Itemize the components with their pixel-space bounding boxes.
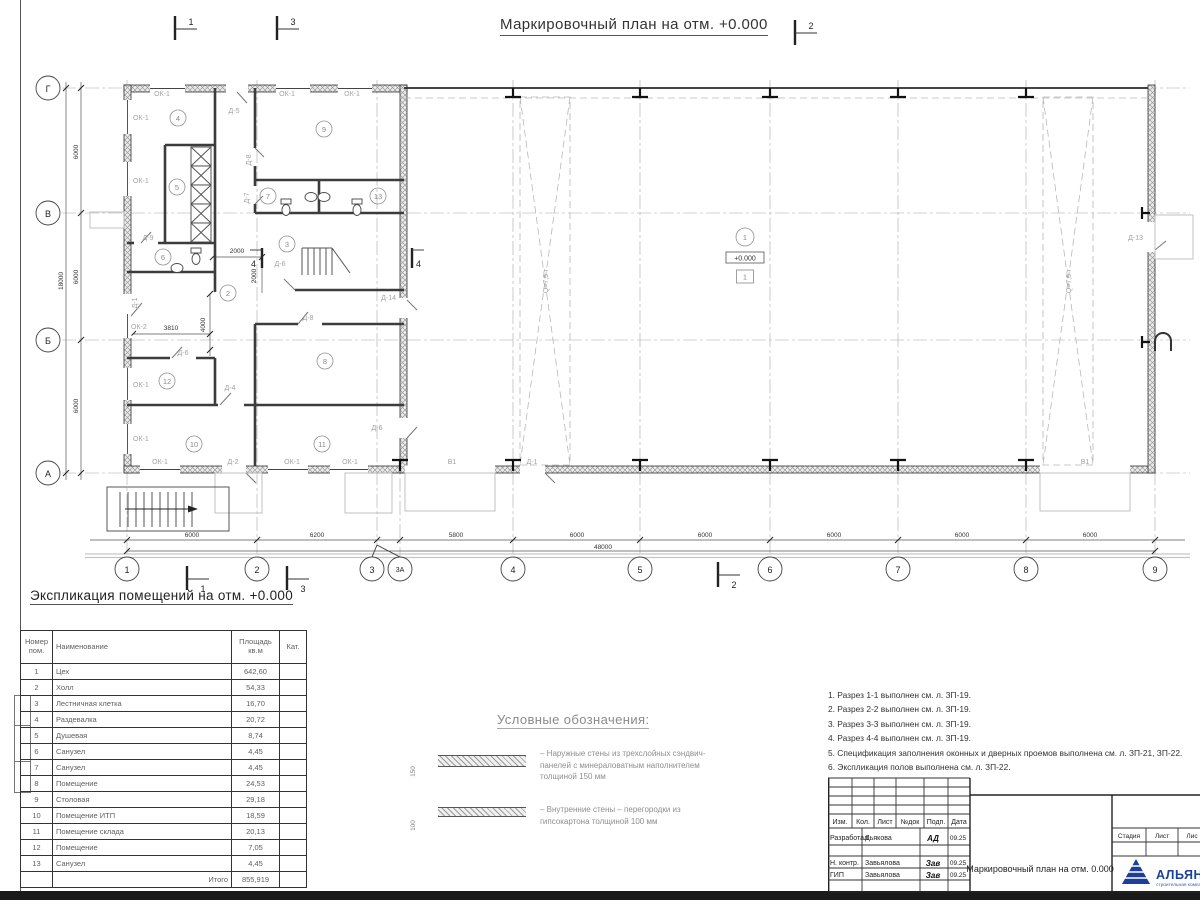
- svg-text:48000: 48000: [594, 544, 612, 551]
- crane-capacity-label: Q=7,5 т: [543, 268, 550, 293]
- svg-text:6000: 6000: [73, 269, 80, 284]
- logo-subtitle: строительная компания: [1156, 883, 1200, 888]
- svg-text:Д-14: Д-14: [381, 295, 396, 302]
- table-row: 8Помещение24,53: [21, 776, 307, 792]
- table-row: 12Помещение7,05: [21, 840, 307, 856]
- level-box: 1: [743, 273, 747, 282]
- svg-text:ОК-1: ОК-1: [344, 91, 360, 98]
- svg-text:Д-8: Д-8: [246, 154, 253, 165]
- date: 09.25: [950, 860, 967, 867]
- svg-text:7: 7: [895, 565, 900, 575]
- svg-text:6000: 6000: [1083, 532, 1098, 539]
- legend-wall-sample-exterior: [438, 755, 526, 767]
- note-line: 5. Спецификация заполнения оконных и две…: [828, 746, 1188, 760]
- svg-text:8: 8: [323, 357, 327, 366]
- svg-text:Д-1: Д-1: [132, 297, 139, 308]
- svg-text:Изм.: Изм.: [833, 819, 848, 826]
- exterior-elements: [90, 212, 1130, 531]
- column-symbols: [392, 88, 1171, 471]
- svg-text:3: 3: [369, 565, 374, 575]
- fixtures: [171, 147, 362, 275]
- role: Разработал: [830, 834, 868, 842]
- note-line: 1. Разрез 1-1 выполнен см. л. ЗП-19.: [828, 688, 1188, 702]
- note-line: 3. Разрез 3-3 выполнен см. л. ЗП-19.: [828, 717, 1188, 731]
- legend-item-text: – Наружные стены из трехслойных сэндвич-…: [540, 748, 722, 783]
- svg-text:А: А: [45, 469, 51, 479]
- svg-text:Кол.: Кол.: [856, 819, 870, 826]
- drawing-sheet: Маркировочный план на отм. +0.000 Экспли…: [0, 0, 1200, 900]
- signature: АД: [926, 834, 939, 843]
- svg-text:№док: №док: [901, 819, 920, 826]
- signature: Зав: [926, 871, 941, 880]
- legend-wall-sample-interior: [438, 807, 526, 817]
- svg-text:ОК-1: ОК-1: [133, 178, 149, 185]
- svg-text:В1: В1: [1081, 459, 1090, 466]
- svg-text:Д-8: Д-8: [303, 315, 314, 322]
- svg-text:ОК-1: ОК-1: [342, 459, 358, 466]
- svg-text:6000: 6000: [185, 532, 200, 539]
- entrance-stair: [107, 487, 229, 531]
- table-row: 5Душевая8,74: [21, 728, 307, 744]
- svg-text:В: В: [45, 209, 51, 219]
- grid-axes: [62, 80, 1190, 558]
- table-row: 11Помещение склада20,13: [21, 824, 307, 840]
- date: 09.25: [950, 872, 967, 879]
- role: Н. контр.: [830, 860, 859, 867]
- svg-text:2: 2: [731, 580, 736, 590]
- table-row: 13Санузел4,45: [21, 856, 307, 872]
- room-numbers: 2 3 4 5 6 7 8 9 10 11 12 13: [155, 110, 386, 452]
- svg-text:8: 8: [1023, 565, 1028, 575]
- door-leaves: [131, 92, 1193, 483]
- svg-text:12: 12: [163, 377, 171, 386]
- svg-text:5: 5: [175, 183, 179, 192]
- table-row: 2Холл54,33: [21, 680, 307, 696]
- svg-text:1: 1: [188, 17, 193, 27]
- svg-text:Подп.: Подп.: [927, 819, 946, 826]
- crane-capacity-label: Q=7,5 т: [1066, 268, 1073, 293]
- svg-text:Стадия: Стадия: [1118, 833, 1141, 840]
- document-title: Маркировочный план на отм. 0.000: [966, 864, 1113, 874]
- svg-text:Лист: Лист: [877, 819, 893, 826]
- stairs: [302, 248, 350, 275]
- walls: [124, 85, 1194, 484]
- svg-text:9: 9: [322, 125, 326, 134]
- svg-text:ОК-2: ОК-2: [131, 324, 147, 331]
- table-total-row: Итого855,919: [21, 872, 307, 888]
- svg-text:13: 13: [374, 192, 382, 201]
- svg-text:2: 2: [808, 21, 813, 31]
- date: 09.25: [950, 835, 967, 842]
- svg-text:Д-1: Д-1: [527, 459, 538, 466]
- legend-dim-150: 150: [410, 766, 417, 777]
- svg-text:5800: 5800: [449, 532, 464, 539]
- svg-text:2000: 2000: [230, 248, 245, 255]
- svg-text:6000: 6000: [73, 398, 80, 413]
- svg-text:Дата: Дата: [951, 819, 967, 826]
- table-row: 7Санузел4,45: [21, 760, 307, 776]
- legend-heading: Условные обозначения:: [497, 712, 649, 729]
- role: ГИП: [830, 872, 844, 879]
- table-header-row: Номер пом. Наименование Площадь кв.м Кат…: [21, 631, 307, 664]
- svg-text:18000: 18000: [58, 272, 65, 290]
- svg-text:7: 7: [266, 192, 270, 201]
- name: Завьялова: [865, 872, 900, 879]
- svg-text:6200: 6200: [310, 532, 325, 539]
- floor-plan: 6000 6200 5800 6000 6000 6000 6000 6000 …: [0, 0, 1200, 600]
- table-row: 4Раздевалка20,72: [21, 712, 307, 728]
- svg-text:3810: 3810: [164, 325, 179, 332]
- title-block: Изм. Кол. Лист №док Подп. Дата Разработа…: [828, 776, 1200, 894]
- svg-text:4000: 4000: [200, 317, 207, 332]
- svg-text:Лис: Лис: [1186, 833, 1198, 840]
- svg-text:5: 5: [637, 565, 642, 575]
- svg-text:4: 4: [416, 259, 421, 269]
- svg-text:Б: Б: [45, 336, 51, 346]
- name: Дьякова: [865, 835, 892, 842]
- svg-text:Д-6: Д-6: [372, 425, 383, 432]
- svg-text:Д-2: Д-2: [228, 459, 239, 466]
- svg-text:1: 1: [124, 565, 129, 575]
- wall-openings: [124, 85, 1156, 474]
- svg-text:Д-6: Д-6: [275, 261, 286, 268]
- table-row: 10Помещение ИТП18,59: [21, 808, 307, 824]
- svg-text:Лист: Лист: [1155, 833, 1169, 840]
- svg-text:Д-4: Д-4: [225, 385, 236, 392]
- svg-text:Г: Г: [46, 84, 51, 94]
- svg-text:2: 2: [226, 289, 230, 298]
- svg-text:9: 9: [1152, 565, 1157, 575]
- explication-table: Номер пом. Наименование Площадь кв.м Кат…: [20, 630, 307, 888]
- hall-marks: 1 +0.000 1: [726, 228, 764, 283]
- room-number: 1: [743, 233, 747, 242]
- dimension-lines: 6000 6200 5800 6000 6000 6000 6000 6000 …: [58, 82, 1185, 554]
- svg-text:ОК-1: ОК-1: [133, 115, 149, 122]
- svg-text:6000: 6000: [570, 532, 585, 539]
- company-logo: АЛЬЯНС строительная компания: [1122, 859, 1200, 888]
- name: Завьялова: [865, 860, 900, 867]
- elevation-mark: +0.000: [734, 256, 756, 263]
- note-line: 4. Разрез 4-4 выполнен см. л. ЗП-19.: [828, 731, 1188, 745]
- note-line: 2. Разрез 2-2 выполнен см. л. ЗП-19.: [828, 702, 1188, 716]
- table-row: 6Санузел4,45: [21, 744, 307, 760]
- svg-text:6: 6: [767, 565, 772, 575]
- note-line: 6. Экспликация полов выполнена см. л. ЗП…: [828, 760, 1188, 774]
- svg-text:ОК-1: ОК-1: [133, 382, 149, 389]
- svg-text:2: 2: [254, 565, 259, 575]
- svg-text:6000: 6000: [698, 532, 713, 539]
- svg-text:Д-7: Д-7: [244, 192, 251, 203]
- table-row: 9Столовая29,18: [21, 792, 307, 808]
- svg-text:4: 4: [510, 565, 515, 575]
- svg-text:6000: 6000: [827, 532, 842, 539]
- notes-list: 1. Разрез 1-1 выполнен см. л. ЗП-19. 2. …: [828, 688, 1188, 774]
- svg-text:4: 4: [176, 114, 180, 123]
- svg-text:Д-5: Д-5: [229, 108, 240, 115]
- logo-name: АЛЬЯНС: [1156, 868, 1200, 882]
- svg-text:3: 3: [285, 240, 289, 249]
- legend-dim-100: 100: [410, 820, 417, 831]
- svg-text:6000: 6000: [955, 532, 970, 539]
- svg-text:3: 3: [290, 17, 295, 27]
- signature: Зав: [926, 859, 941, 868]
- crane-zones: Q=7,5 т Q=7,5 т: [520, 97, 1093, 465]
- svg-text:Д-6: Д-6: [178, 350, 189, 357]
- shower-stalls: [191, 147, 211, 242]
- svg-text:Д-9: Д-9: [143, 235, 154, 242]
- svg-text:2000: 2000: [251, 268, 258, 283]
- svg-text:3А: 3А: [396, 567, 405, 574]
- svg-text:ОК-1: ОК-1: [133, 436, 149, 443]
- wall-ladder-symbol: [1155, 333, 1171, 351]
- svg-text:ОК-1: ОК-1: [152, 459, 168, 466]
- svg-text:ОК-1: ОК-1: [154, 91, 170, 98]
- svg-text:1: 1: [200, 584, 205, 594]
- element-labels: ОК-1 ОК-1 ОК-1 ОК-1 ОК-1 ОК-2 ОК-1 ОК-1 …: [131, 91, 1143, 466]
- table-row: 1Цех642,60: [21, 664, 307, 680]
- svg-text:В1: В1: [448, 459, 457, 466]
- legend-item-text: – Внутренние стены – перегородки из гипс…: [540, 804, 722, 827]
- partitions: [127, 88, 404, 466]
- table-row: 3Лестничная клетка16,70: [21, 696, 307, 712]
- svg-text:10: 10: [190, 440, 198, 449]
- svg-text:11: 11: [318, 440, 326, 449]
- svg-text:ОК-1: ОК-1: [279, 91, 295, 98]
- section-marks: 1 3 2 1 3 2 4 4: [175, 16, 817, 594]
- svg-text:6: 6: [161, 253, 165, 262]
- svg-text:3: 3: [300, 584, 305, 594]
- svg-text:4: 4: [251, 259, 256, 269]
- svg-text:6000: 6000: [73, 144, 80, 159]
- svg-text:ОК-1: ОК-1: [284, 459, 300, 466]
- svg-text:Д-13: Д-13: [1128, 235, 1143, 242]
